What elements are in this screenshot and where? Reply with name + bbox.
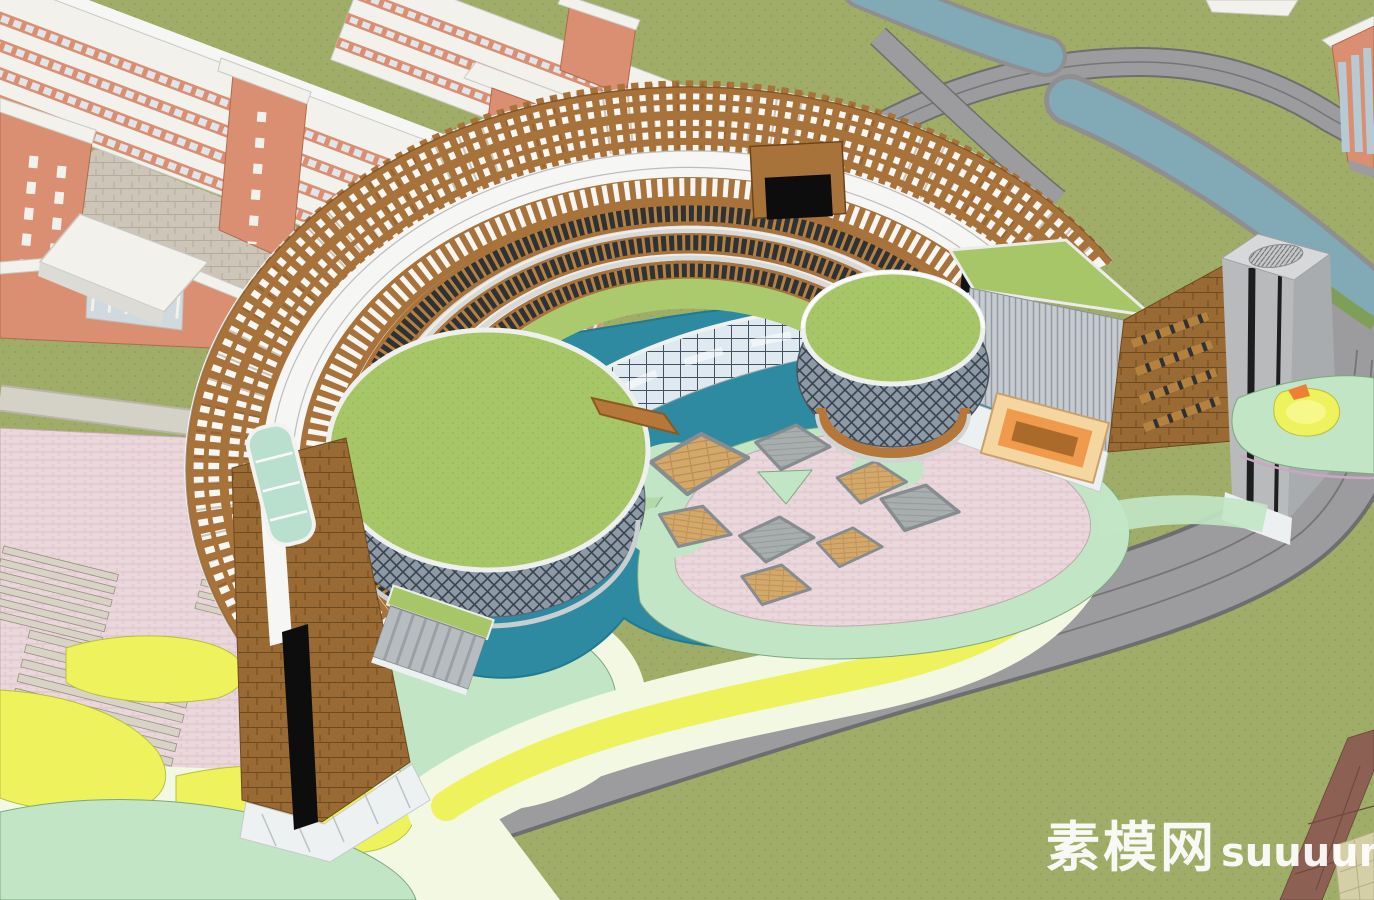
campus-scene: 素模网suuuum.com xyxy=(0,0,1374,900)
drum-building xyxy=(328,330,648,626)
watermark-en: suuuum.com xyxy=(1221,830,1374,876)
drum-green-roof xyxy=(328,330,648,570)
watermark-cn: 素模网 xyxy=(1046,816,1217,879)
basket-pavilion xyxy=(797,272,989,461)
architectural-rendering: 素模网suuuum.com xyxy=(0,0,1374,900)
roof-gate xyxy=(750,142,846,221)
